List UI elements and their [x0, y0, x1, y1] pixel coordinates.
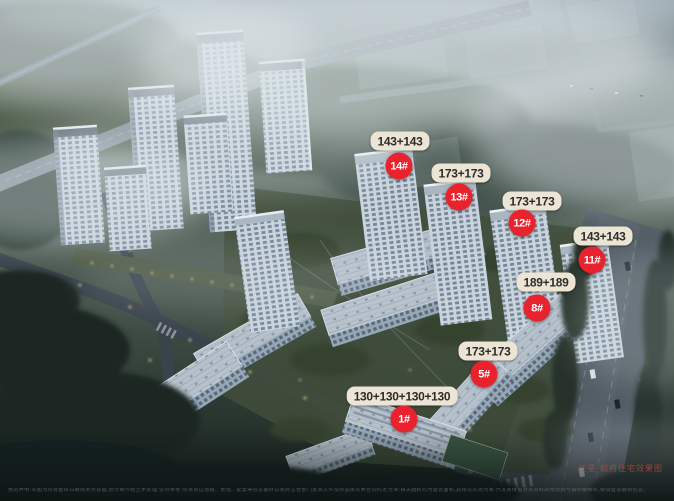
aerial-site-rendering: 143+143 14# 173+173 13# 173+173 12# 143+… — [0, 0, 674, 501]
building-number-badge-12: 12# — [509, 210, 536, 237]
building-number-badge-11: 11# — [579, 247, 606, 274]
unit-mix-label-13: 173+173 — [432, 164, 491, 183]
scene-art — [0, 0, 674, 501]
unit-mix-label-11: 143+143 — [574, 227, 633, 246]
building-number-badge-8: 8# — [524, 295, 551, 322]
unit-mix-label-14: 143+143 — [371, 132, 430, 151]
disclaimer-text: 免责声明:本图为项目整体鸟瞰效果示意图,部分细节经艺术处理,仅供参考;项目周边道… — [8, 488, 668, 493]
building-number-badge-5: 5# — [471, 361, 498, 388]
unit-mix-label-8: 189+189 — [517, 273, 576, 292]
building-number-badge-1: 1# — [391, 406, 418, 433]
building-number-badge-14: 14# — [386, 153, 413, 180]
unit-mix-label-12: 173+173 — [503, 192, 562, 211]
project-watermark: 红星·樾府住宅效果图 — [578, 463, 663, 474]
building-number-badge-13: 13# — [446, 184, 473, 211]
unit-mix-label-5: 173+173 — [459, 342, 518, 361]
unit-mix-label-1: 130+130+130+130 — [347, 387, 458, 406]
